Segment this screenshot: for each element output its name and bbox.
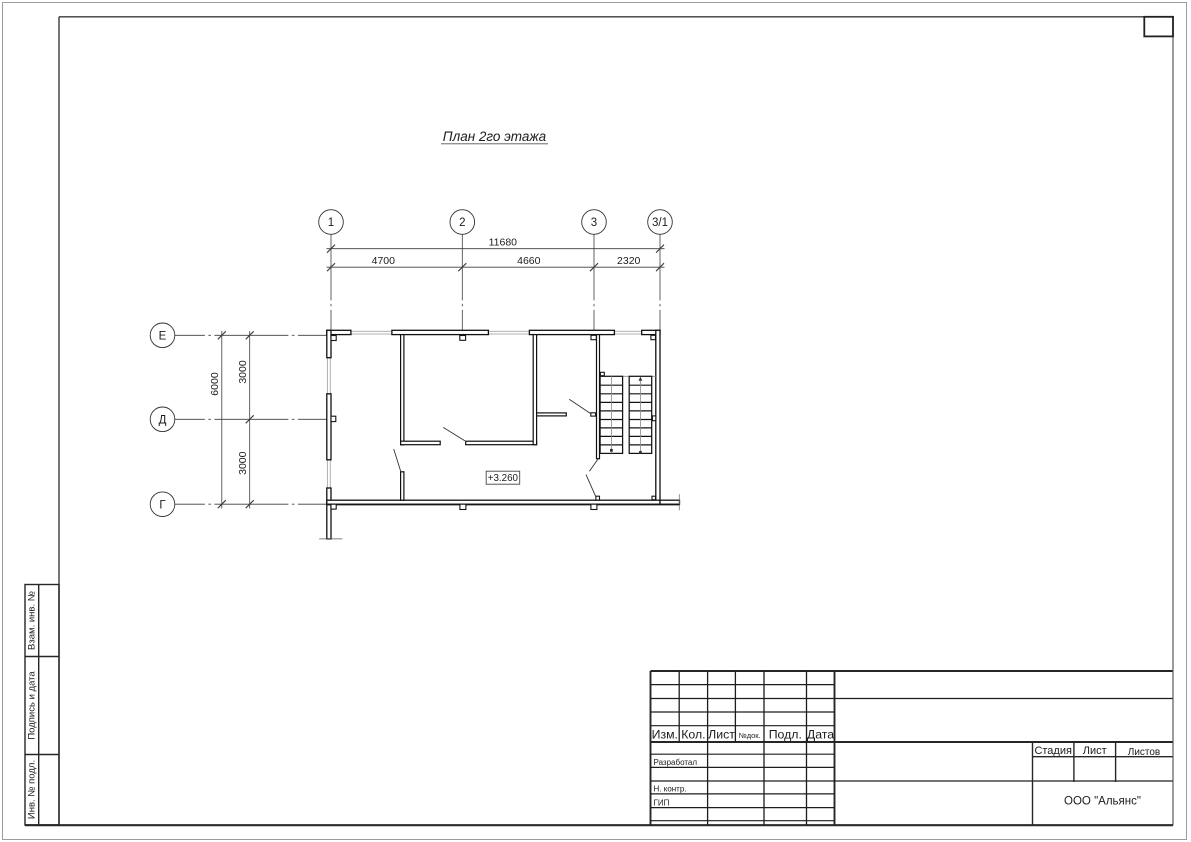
svg-text:ООО "Альянс": ООО "Альянс"	[1064, 796, 1141, 808]
svg-text:1: 1	[328, 217, 334, 229]
svg-text:Г: Г	[159, 499, 166, 511]
svg-text:Стадия: Стадия	[1034, 745, 1072, 757]
svg-text:Подл.: Подл.	[769, 728, 802, 742]
svg-text:План 2го этажа: План 2го этажа	[443, 129, 547, 144]
svg-text:Кол.: Кол.	[681, 728, 705, 742]
svg-text:3/1: 3/1	[652, 217, 668, 229]
svg-text:Инв. № подл.: Инв. № подл.	[26, 760, 37, 819]
svg-text:Лист: Лист	[1083, 745, 1107, 757]
svg-text:Д: Д	[159, 415, 167, 427]
svg-text:6000: 6000	[209, 372, 221, 396]
svg-text:Дата: Дата	[807, 728, 834, 742]
svg-text:4700: 4700	[372, 255, 396, 267]
svg-text:3000: 3000	[237, 451, 249, 475]
svg-text:Изм.: Изм.	[652, 728, 678, 742]
svg-text:ГИП: ГИП	[654, 798, 670, 807]
svg-text:Подпись и дата: Подпись и дата	[26, 671, 37, 740]
svg-text:+3.260: +3.260	[488, 473, 519, 484]
svg-text:Лист: Лист	[708, 728, 735, 742]
svg-text:11680: 11680	[489, 236, 518, 248]
svg-text:№док.: №док.	[739, 731, 761, 740]
svg-text:Е: Е	[159, 331, 167, 343]
svg-text:3: 3	[591, 217, 597, 229]
svg-text:Н. контр.: Н. контр.	[654, 785, 687, 794]
svg-text:4660: 4660	[517, 255, 541, 267]
svg-text:2: 2	[459, 217, 465, 229]
svg-text:2320: 2320	[617, 255, 641, 267]
svg-text:3000: 3000	[237, 360, 249, 384]
svg-text:Разработал: Разработал	[654, 758, 698, 767]
svg-text:Листов: Листов	[1128, 747, 1161, 758]
svg-text:Взам. инв. №: Взам. инв. №	[26, 591, 37, 650]
